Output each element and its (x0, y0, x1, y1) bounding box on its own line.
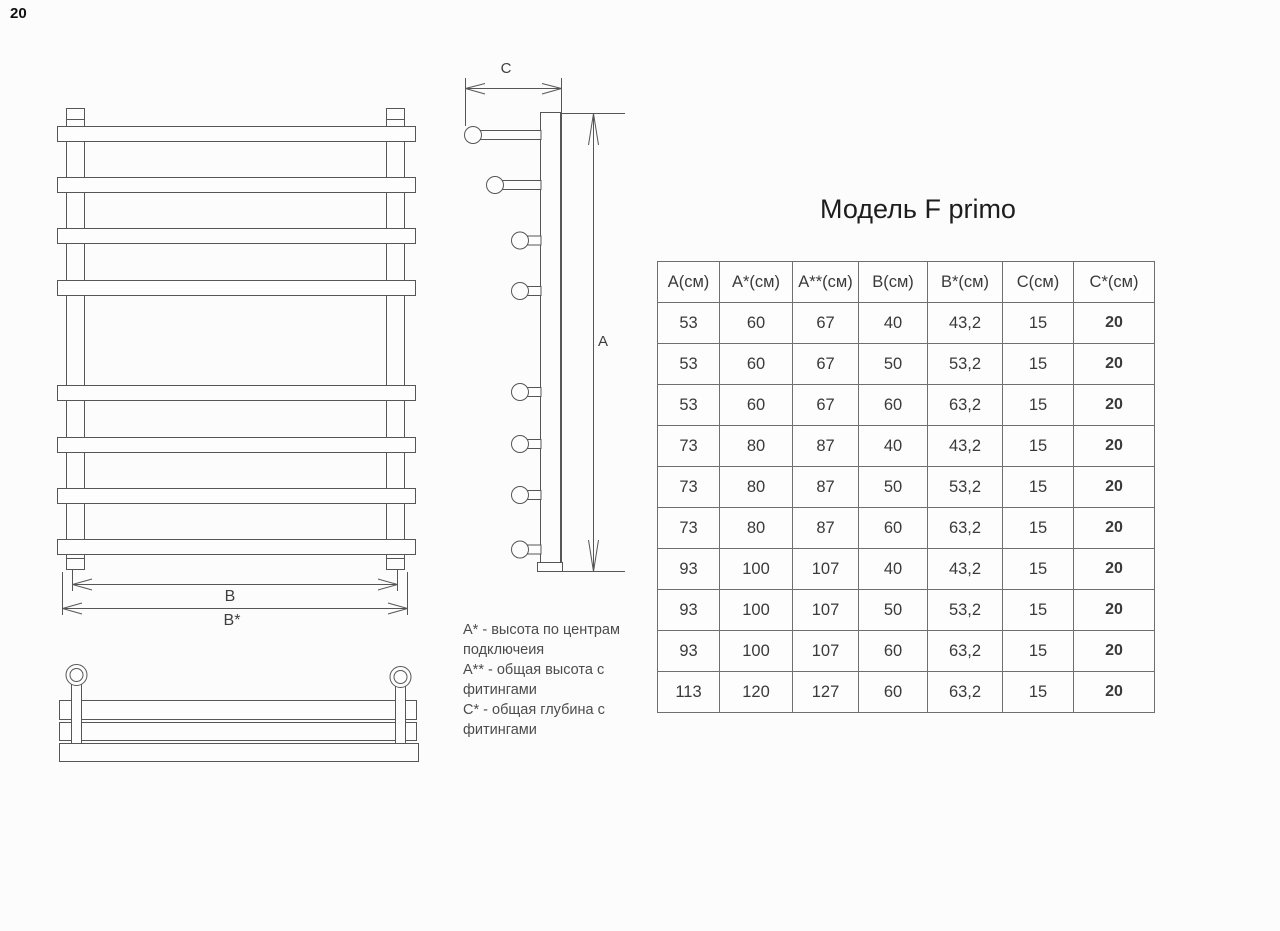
table-cell: 100 (720, 549, 793, 590)
front-bars (58, 127, 416, 555)
table-cell: 20 (1074, 590, 1155, 631)
table-row: 5360674043,21520 (658, 303, 1155, 344)
table-cell: 53 (658, 303, 720, 344)
notes-legend: А* - высота по центрам подключеия А** - … (463, 620, 658, 740)
table-cell: 53 (658, 385, 720, 426)
table-cell: 20 (1074, 549, 1155, 590)
table-cell: 80 (720, 426, 793, 467)
table-cell: 63,2 (928, 631, 1003, 672)
table-cell: 60 (859, 385, 928, 426)
table-row: 1131201276063,21520 (658, 672, 1155, 713)
table-cell: 20 (1074, 303, 1155, 344)
table-cell: 50 (859, 467, 928, 508)
table-cell: 15 (1003, 467, 1074, 508)
table-cell: 80 (720, 467, 793, 508)
dimension-b-star-label: B* (224, 612, 241, 629)
header-cell: А*(см) (720, 262, 793, 303)
table-cell: 107 (793, 590, 859, 631)
table-cell: 60 (720, 303, 793, 344)
table-cell: 15 (1003, 672, 1074, 713)
table-row: 931001074043,21520 (658, 549, 1155, 590)
table-row: 7380874043,21520 (658, 426, 1155, 467)
table-cell: 20 (1074, 508, 1155, 549)
table-cell: 20 (1074, 631, 1155, 672)
table-cell: 20 (1074, 672, 1155, 713)
table-cell: 20 (1074, 385, 1155, 426)
table-cell: 127 (793, 672, 859, 713)
table-cell: 15 (1003, 303, 1074, 344)
table-cell: 15 (1003, 631, 1074, 672)
table-cell: 73 (658, 467, 720, 508)
table-cell: 80 (720, 508, 793, 549)
table-cell: 43,2 (928, 303, 1003, 344)
table-cell: 100 (720, 590, 793, 631)
table-cell: 40 (859, 549, 928, 590)
table-cell: 53,2 (928, 467, 1003, 508)
table-cell: 20 (1074, 426, 1155, 467)
table-cell: 40 (859, 426, 928, 467)
table-cell: 40 (859, 303, 928, 344)
table-cell: 50 (859, 344, 928, 385)
table-cell: 20 (1074, 344, 1155, 385)
side-bars (465, 127, 542, 559)
table-cell: 63,2 (928, 672, 1003, 713)
table-cell: 15 (1003, 508, 1074, 549)
table-cell: 67 (793, 303, 859, 344)
header-cell: В(см) (859, 262, 928, 303)
table-cell: 93 (658, 549, 720, 590)
table-row: 7380875053,21520 (658, 467, 1155, 508)
top-view-bars (60, 701, 417, 741)
table-cell: 93 (658, 590, 720, 631)
dimension-a-label: A (598, 333, 608, 350)
header-cell: С(см) (1003, 262, 1074, 303)
table-cell: 113 (658, 672, 720, 713)
table-cell: 63,2 (928, 508, 1003, 549)
header-cell: А**(см) (793, 262, 859, 303)
side-view-drawing: C A (440, 40, 640, 590)
table-cell: 60 (720, 385, 793, 426)
note-c-star: С* - общая глубина с фитингами (463, 700, 658, 740)
table-cell: 53,2 (928, 590, 1003, 631)
table-cell: 73 (658, 426, 720, 467)
table-cell: 60 (859, 631, 928, 672)
model-title: Модель F primo (768, 194, 1068, 225)
table-cell: 93 (658, 631, 720, 672)
table-cell: 43,2 (928, 426, 1003, 467)
top-view-front-bar (60, 744, 419, 762)
table-cell: 20 (1074, 467, 1155, 508)
table-cell: 107 (793, 549, 859, 590)
table-cell: 15 (1003, 549, 1074, 590)
table-cell: 87 (793, 467, 859, 508)
table-row: 931001076063,21520 (658, 631, 1155, 672)
note-a-star: А* - высота по центрам подключеия (463, 620, 658, 660)
header-cell: А(см) (658, 262, 720, 303)
table-cell: 87 (793, 426, 859, 467)
table-cell: 43,2 (928, 549, 1003, 590)
table-cell: 73 (658, 508, 720, 549)
table-cell: 50 (859, 590, 928, 631)
table-cell: 87 (793, 508, 859, 549)
top-view-drawing (40, 650, 440, 780)
table-cell: 15 (1003, 426, 1074, 467)
table-row: 7380876063,21520 (658, 508, 1155, 549)
table-cell: 120 (720, 672, 793, 713)
header-cell: В*(см) (928, 262, 1003, 303)
table-cell: 67 (793, 385, 859, 426)
table-cell: 60 (720, 344, 793, 385)
table-row: 931001075053,21520 (658, 590, 1155, 631)
header-cell: С*(см) (1074, 262, 1155, 303)
table-header-row: А(см)А*(см)А**(см)В(см)В*(см)С(см)С*(см) (658, 262, 1155, 303)
table-cell: 63,2 (928, 385, 1003, 426)
dimension-b-label: B (225, 588, 236, 605)
table-cell: 67 (793, 344, 859, 385)
table-cell: 15 (1003, 590, 1074, 631)
table-row: 5360676063,21520 (658, 385, 1155, 426)
note-a-double-star: А** - общая высота с фитингами (463, 660, 658, 700)
table-cell: 15 (1003, 385, 1074, 426)
table-cell: 100 (720, 631, 793, 672)
dimensions-table: А(см)А*(см)А**(см)В(см)В*(см)С(см)С*(см)… (657, 261, 1155, 713)
table-cell: 107 (793, 631, 859, 672)
page-number: 20 (10, 5, 27, 22)
top-view-pipe-rings (66, 665, 411, 688)
front-view-drawing: B B* (40, 90, 440, 650)
table-cell: 15 (1003, 344, 1074, 385)
table-cell: 60 (859, 672, 928, 713)
dimension-c-label: C (501, 60, 512, 77)
table-cell: 53,2 (928, 344, 1003, 385)
table-cell: 53 (658, 344, 720, 385)
table-row: 5360675053,21520 (658, 344, 1155, 385)
table-cell: 60 (859, 508, 928, 549)
